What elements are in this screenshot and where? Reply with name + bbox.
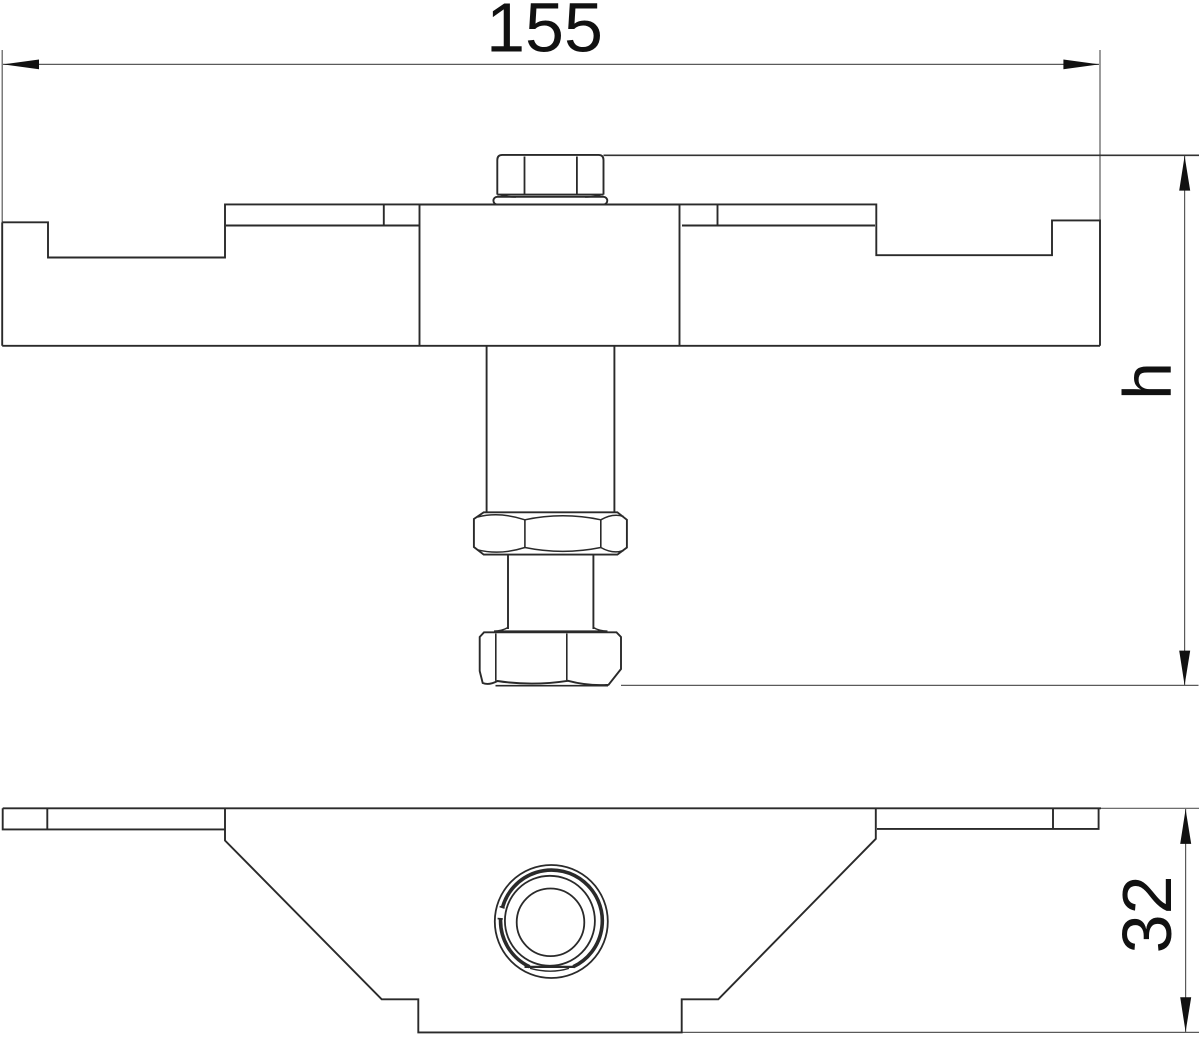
- svg-text:155: 155: [486, 0, 603, 67]
- svg-text:32: 32: [1108, 875, 1186, 953]
- svg-text:h: h: [1109, 362, 1185, 400]
